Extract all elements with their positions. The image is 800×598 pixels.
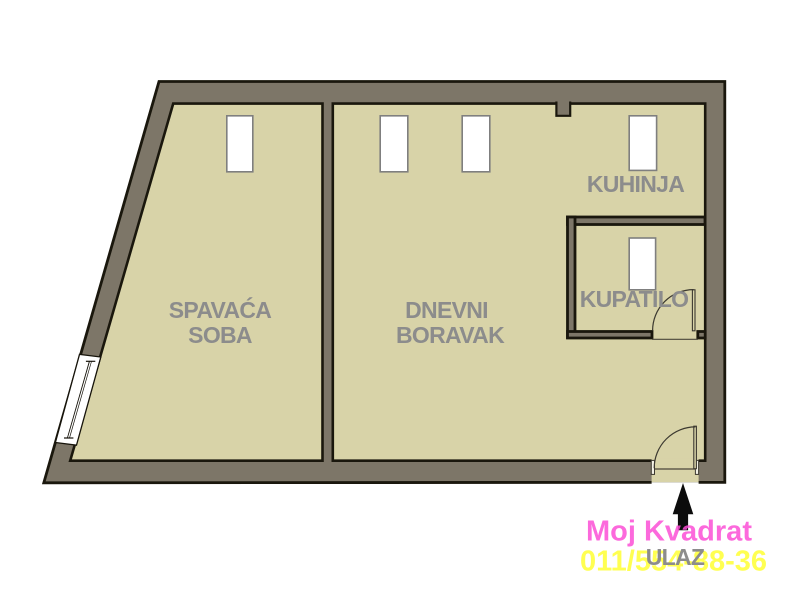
svg-text:SPAVAĆA: SPAVAĆA [169,296,272,323]
svg-text:Moj Kvadrat: Moj Kvadrat [586,516,752,548]
svg-text:KUPATILO: KUPATILO [580,286,689,312]
svg-text:DNEVNI: DNEVNI [405,297,488,323]
svg-text:KUHINJA: KUHINJA [587,171,684,197]
svg-text:ULAZ: ULAZ [646,544,705,570]
svg-text:BORAVAK: BORAVAK [396,322,505,348]
svg-text:SOBA: SOBA [188,322,252,348]
